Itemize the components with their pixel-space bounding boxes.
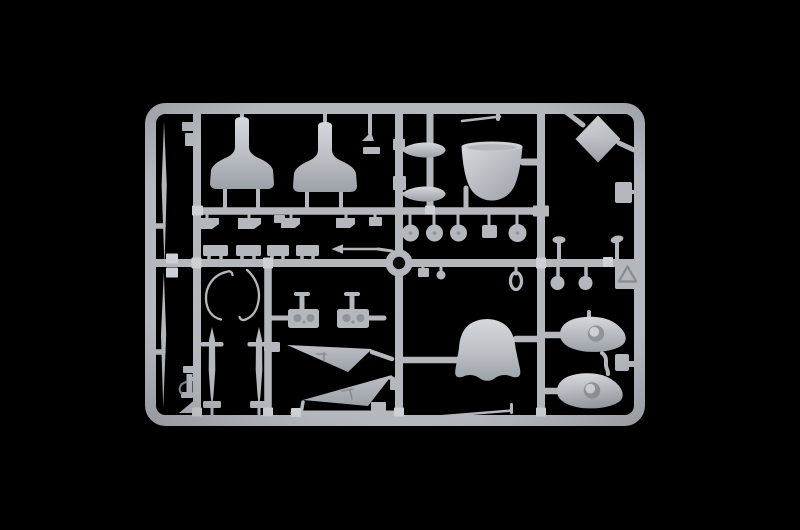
small-rect-row bbox=[203, 245, 319, 256]
part-maker-tag bbox=[615, 261, 640, 289]
photo-stage bbox=[0, 0, 800, 530]
part-spat-rail-block bbox=[615, 354, 629, 371]
part-right-rail-block bbox=[615, 182, 632, 203]
gate-ring-hole bbox=[393, 257, 405, 269]
sprue-photo bbox=[0, 0, 800, 530]
